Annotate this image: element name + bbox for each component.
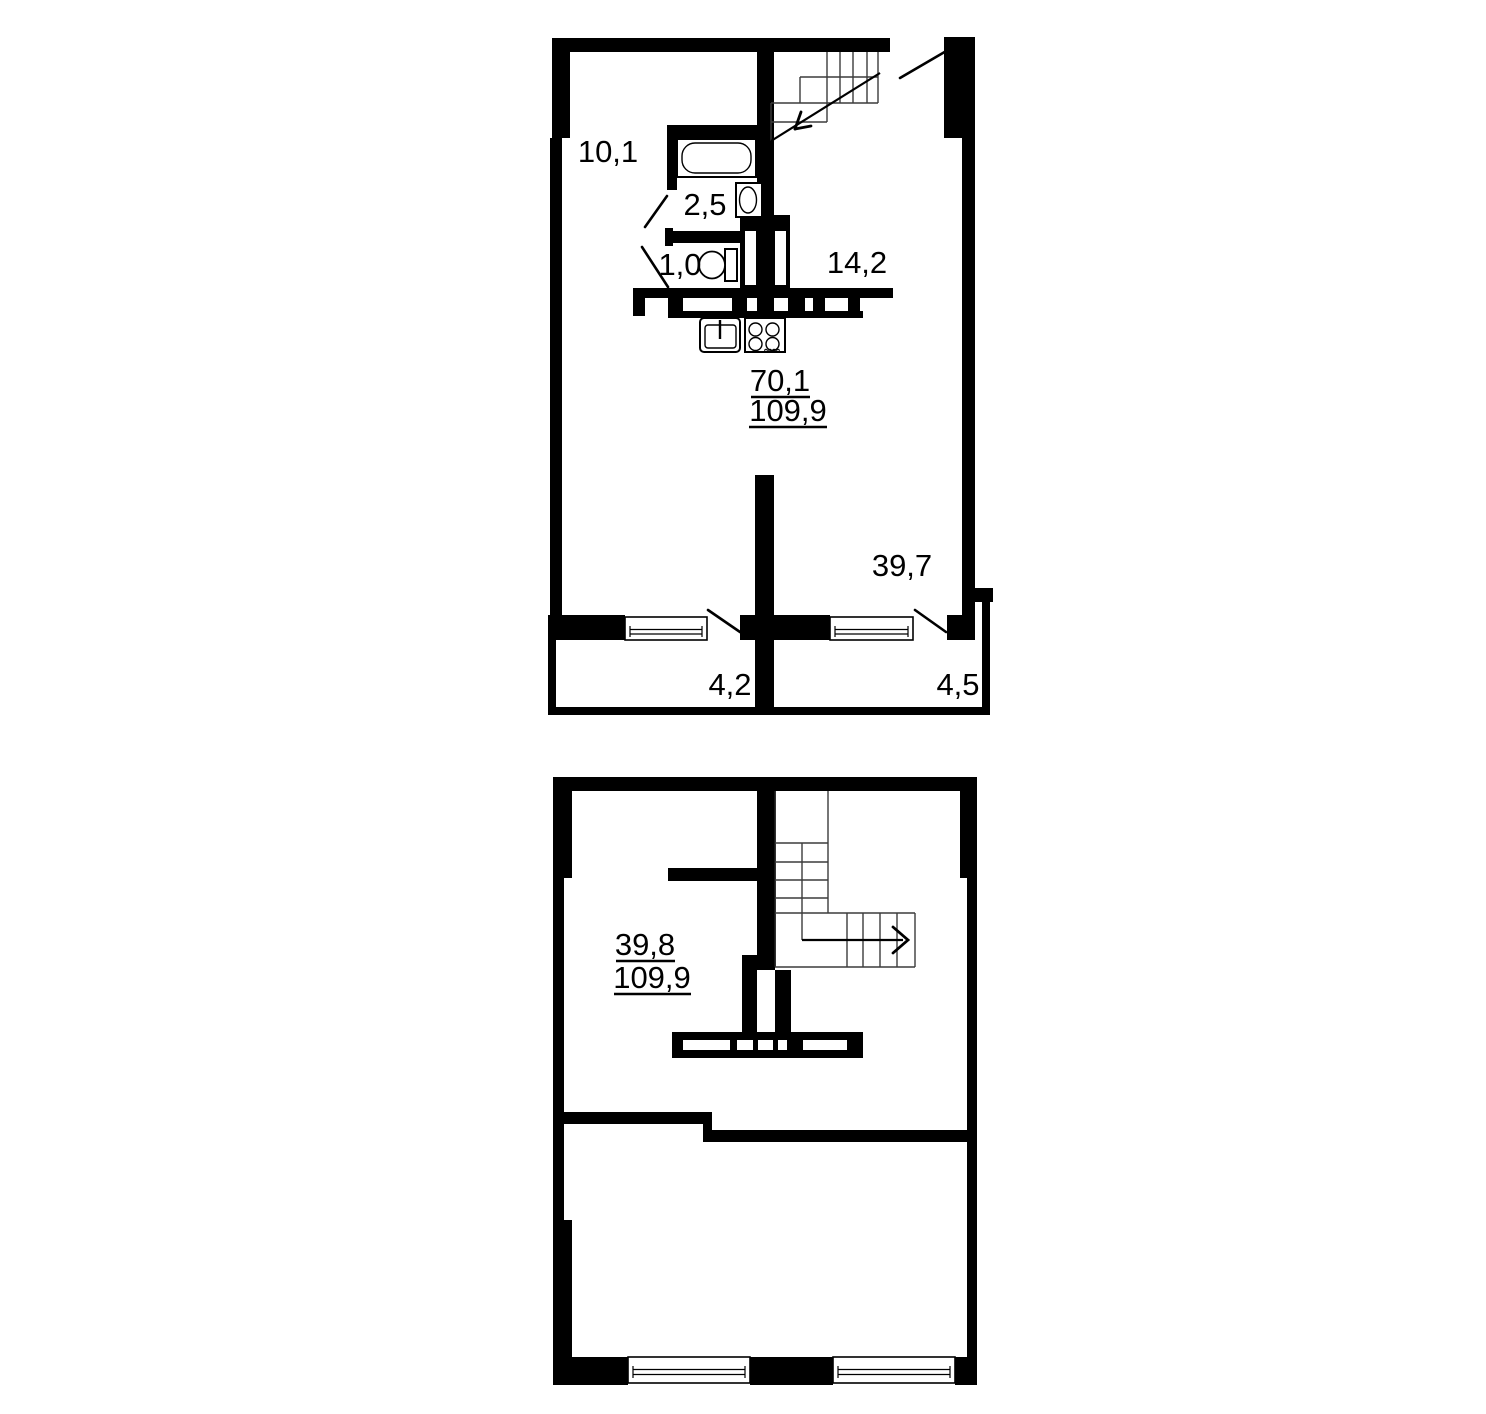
wc-wall-cap: [665, 228, 673, 246]
bathroom-sink-icon: [736, 183, 762, 217]
wall-post: [668, 298, 683, 311]
wall-segment: [548, 615, 625, 640]
wall-post: [813, 298, 825, 311]
wall-post: [848, 298, 860, 311]
wall-segment: [552, 38, 570, 138]
shaft-bar: [775, 970, 791, 1032]
balcony-label-4-5: 4,5: [936, 667, 979, 702]
window: [625, 617, 707, 640]
room-label-1-0: 1,0: [658, 247, 701, 282]
wc-wall: [667, 231, 740, 243]
wall-segment: [955, 1357, 977, 1385]
wall-segment: [548, 640, 556, 715]
wall-segment: [672, 1050, 863, 1058]
wall-segment: [552, 38, 890, 52]
bathtub-icon: [677, 139, 756, 177]
wall-post: [753, 1040, 758, 1050]
wall-segment: [944, 37, 975, 138]
upper-total-area-value: 109,9: [749, 393, 827, 428]
wall-segment: [672, 1032, 863, 1040]
wall-segment: [550, 138, 562, 617]
wall-segment: [553, 878, 564, 1220]
wall-segment: [633, 288, 645, 316]
stepped-wall: [712, 1130, 967, 1142]
kitchen-partition-wall: [633, 288, 893, 318]
shaft-bar: [742, 955, 757, 1032]
room-label-14-2: 14,2: [827, 245, 887, 280]
bathroom-wall: [667, 138, 677, 190]
wall-segment: [960, 777, 977, 878]
window: [830, 617, 913, 640]
wall-segment: [774, 707, 990, 715]
wall-segment: [847, 1032, 863, 1058]
wall-segment: [982, 602, 990, 715]
window: [628, 1357, 750, 1383]
stepped-wall: [703, 1112, 712, 1142]
wall-post: [773, 1040, 778, 1050]
lower-living-area-value: 39,8: [615, 927, 675, 962]
wall-segment: [553, 777, 572, 878]
wall-post: [732, 298, 747, 311]
central-wall: [757, 791, 775, 970]
wall-segment: [553, 1357, 628, 1385]
stove-icon: [745, 318, 785, 352]
wall-post: [757, 288, 774, 318]
wall-post: [788, 298, 805, 311]
floor-plan-drawing: 10,1 2,5 1,0 14,2 39,7 4,2 4,5 70,1 109,…: [0, 0, 1486, 1414]
stepped-wall: [563, 1112, 703, 1124]
wall-stub: [668, 868, 757, 881]
wall-segment: [548, 707, 774, 715]
shaft-slot: [745, 231, 756, 285]
room-label-10-1: 10,1: [578, 134, 638, 169]
floor-plan-page: 10,1 2,5 1,0 14,2 39,7 4,2 4,5 70,1 109,…: [0, 0, 1486, 1414]
lower-total-area-value: 109,9: [613, 960, 691, 995]
wall-segment: [672, 1032, 683, 1058]
wall-segment: [740, 615, 830, 640]
wall-segment: [755, 475, 774, 715]
room-label-2-5: 2,5: [683, 187, 726, 222]
wall-segment: [967, 878, 977, 1385]
bathroom-wall: [667, 125, 758, 138]
wall-segment: [947, 615, 975, 640]
wall-segment: [962, 138, 975, 617]
window: [833, 1357, 955, 1383]
ventilation-shaft-icon: [740, 215, 790, 288]
balcony-label-4-2: 4,2: [708, 667, 751, 702]
wall-segment: [962, 588, 993, 602]
toilet-icon: [699, 249, 737, 281]
wall-segment: [553, 777, 977, 791]
room-label-39-7: 39,7: [872, 548, 932, 583]
kitchen-sink-icon: [700, 318, 740, 352]
wall-post: [730, 1040, 737, 1050]
wall-post: [787, 1040, 803, 1050]
wall-segment: [750, 1357, 833, 1385]
shaft-slot: [775, 231, 786, 285]
